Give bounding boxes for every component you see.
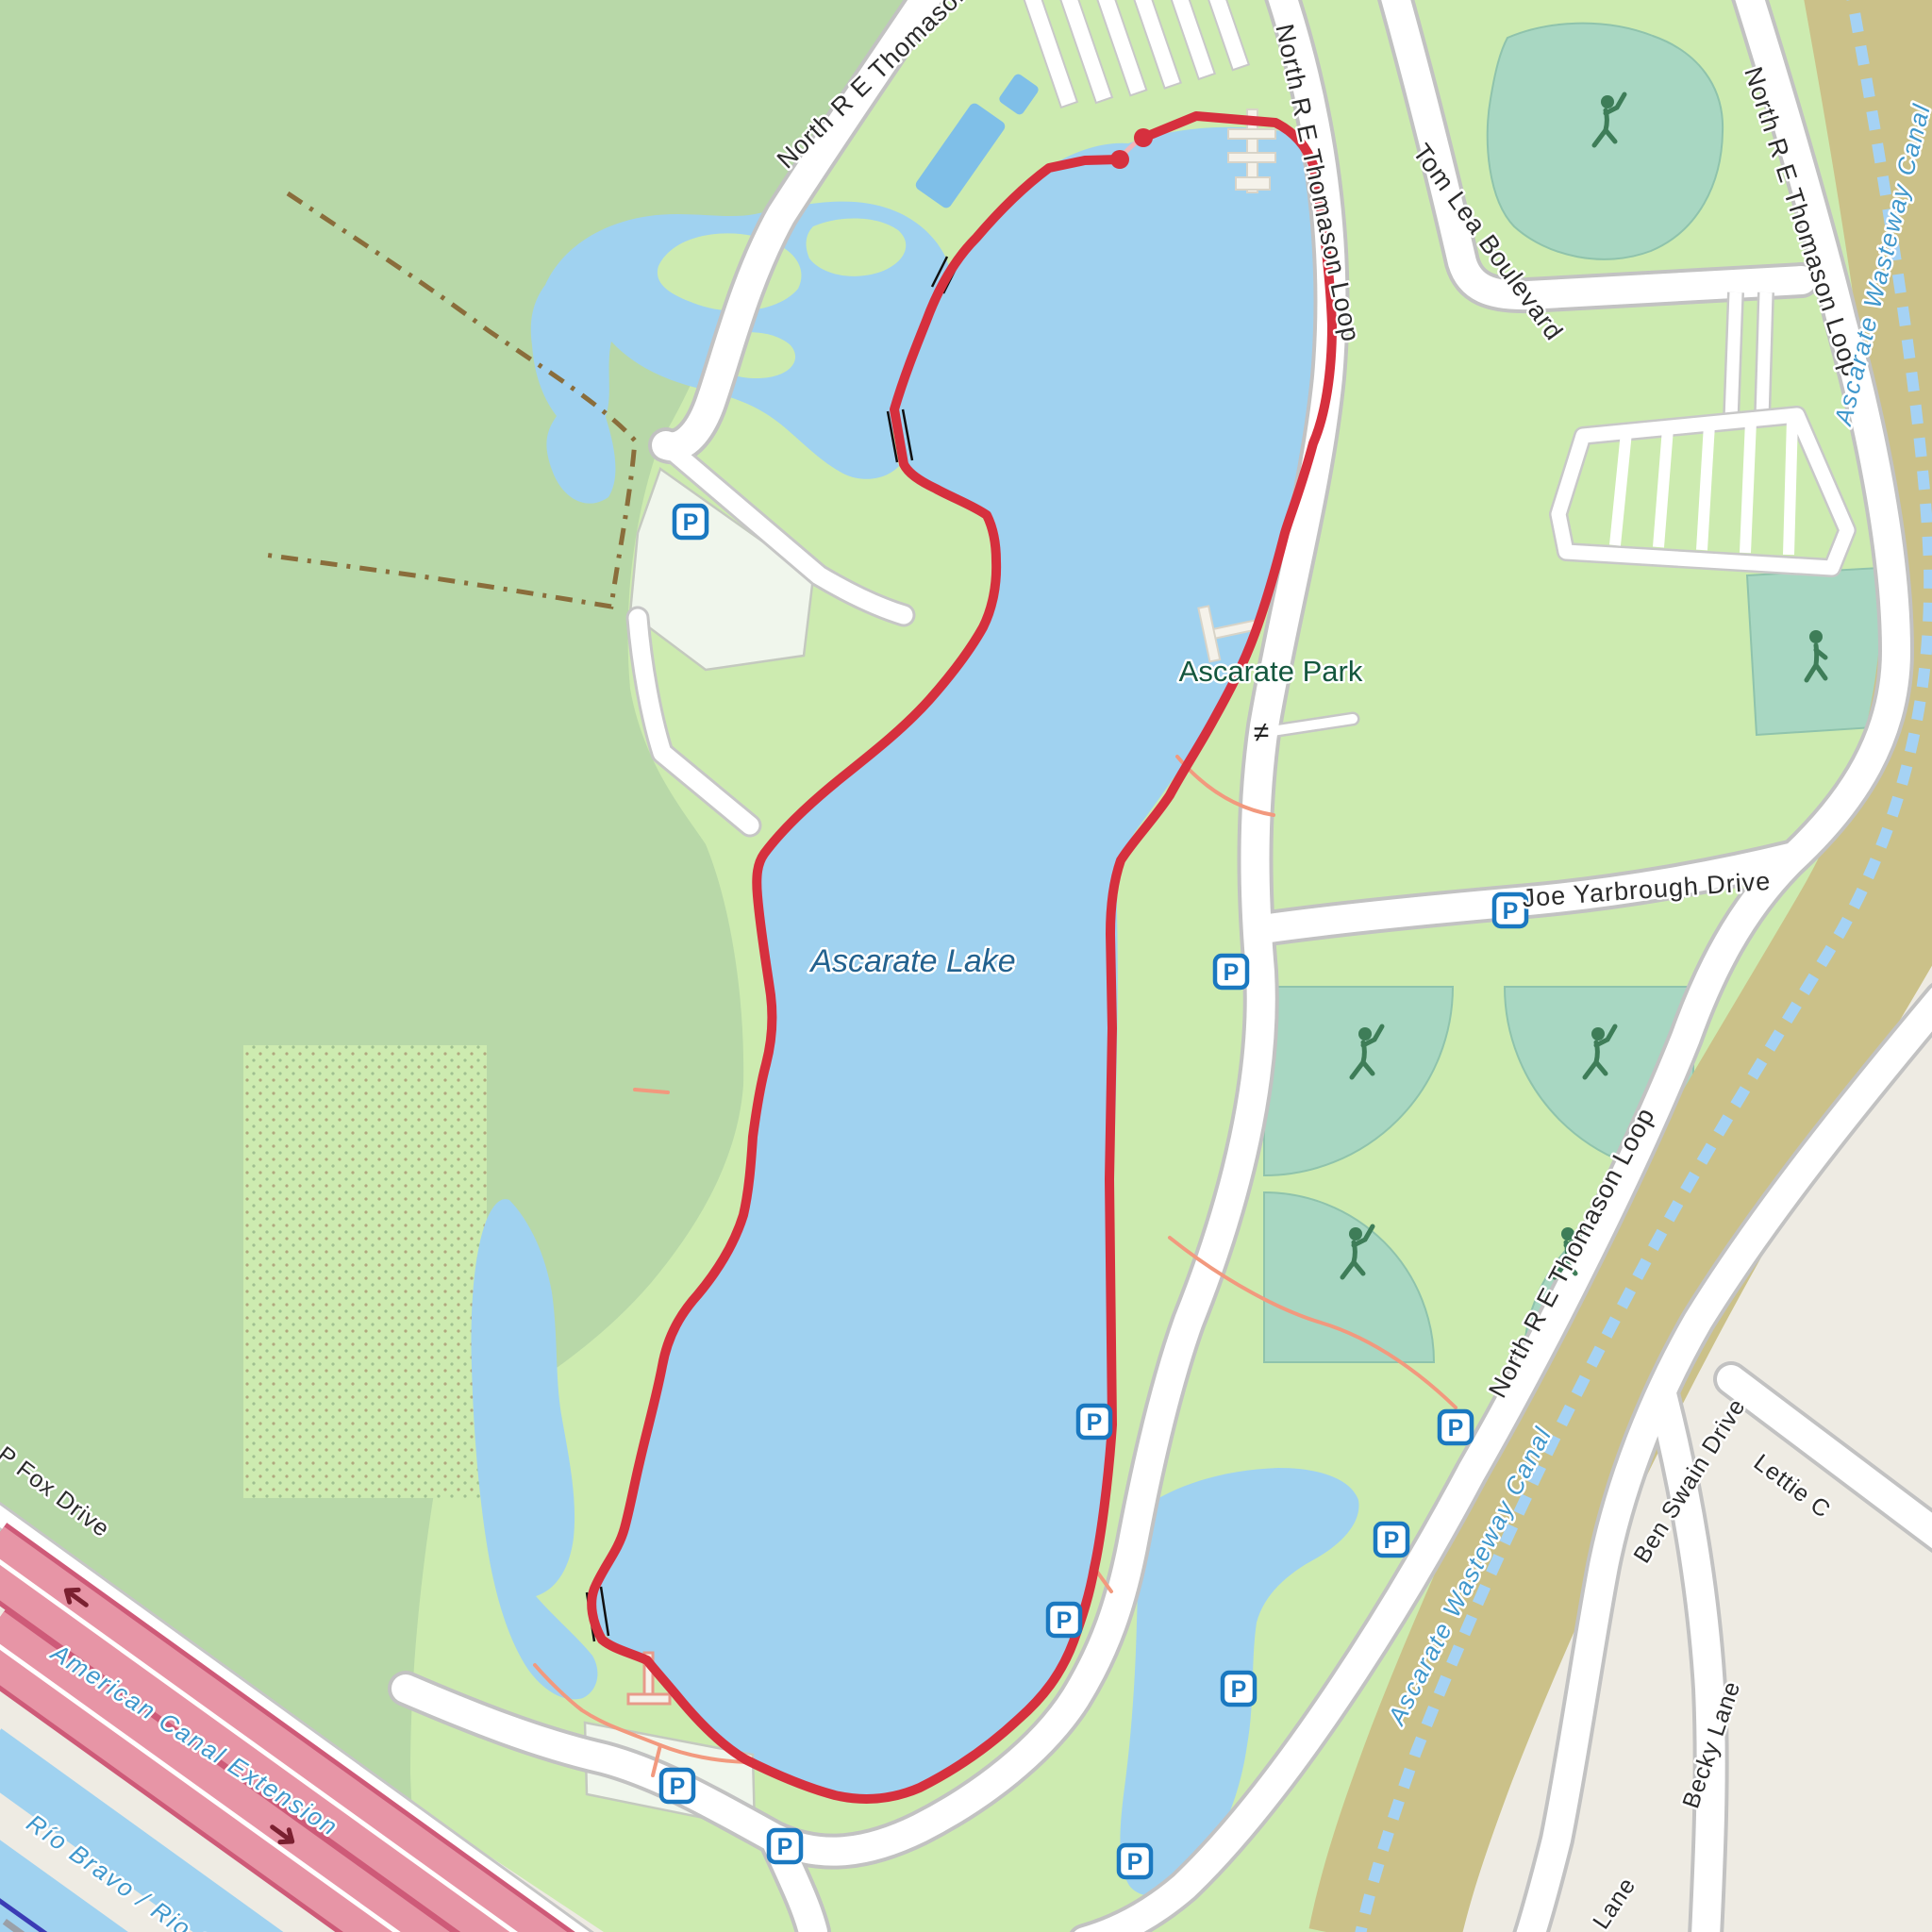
track-endpoint xyxy=(1134,128,1153,147)
gate-icon: ≠ xyxy=(1254,717,1269,748)
park-label: Ascarate Park xyxy=(1179,655,1363,688)
parking-icon xyxy=(1223,1673,1255,1705)
map-canvas[interactable]: P xyxy=(0,0,1932,1932)
parking-icon xyxy=(1375,1524,1407,1556)
parking-icon xyxy=(1215,956,1247,988)
parking-icon xyxy=(769,1830,801,1862)
parking-icon xyxy=(1119,1845,1151,1877)
lake-label: Ascarate Lake xyxy=(808,943,1015,979)
parking-icon xyxy=(661,1770,693,1802)
scrub-area xyxy=(243,1045,487,1498)
parking-icon xyxy=(675,506,707,538)
parking-icon xyxy=(1048,1604,1080,1636)
parking-icon xyxy=(1078,1406,1110,1438)
track-endpoint xyxy=(1110,150,1129,169)
parking-icon xyxy=(1440,1411,1472,1443)
